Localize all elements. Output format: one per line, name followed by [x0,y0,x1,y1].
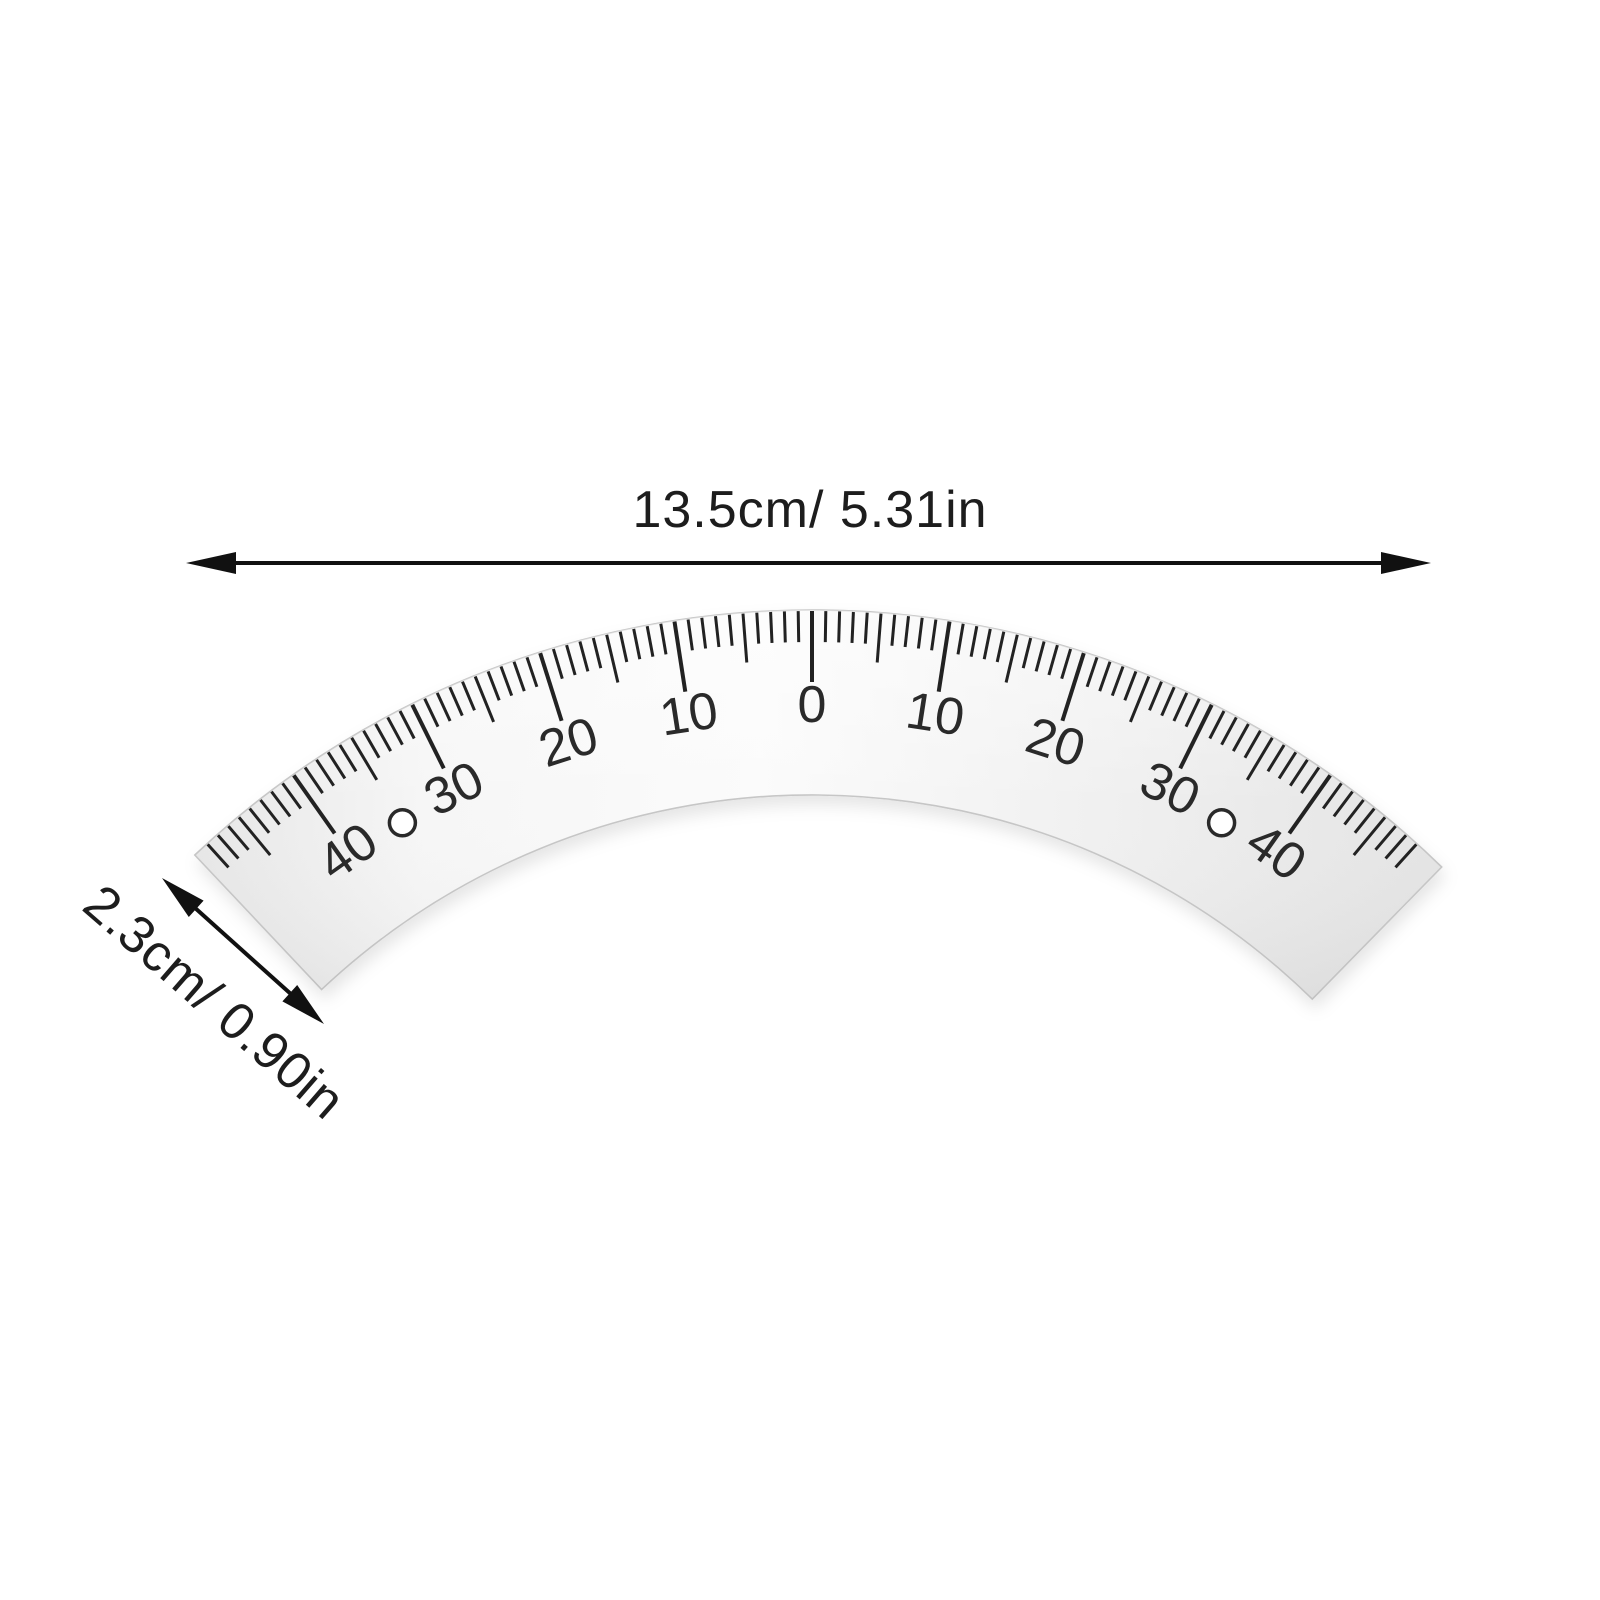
scale-label: 0 [798,676,827,734]
ruler-tick [852,612,853,643]
product-image: 13.5cm/ 5.31in [0,0,1600,1600]
scale-label: 10 [656,681,722,747]
ruler-tick [798,611,799,642]
scale-label: 10 [902,681,968,747]
ruler-tick [825,611,826,642]
arrow-left-icon [186,552,236,574]
ruler-illustration: 2.3cm/ 0.90in 40302010010203040 [0,0,1600,1600]
ruler-tick [757,613,759,644]
ruler-tick [771,612,772,643]
arrow-right-icon [1381,552,1431,574]
ruler-hole [389,810,415,836]
ruler-tick [865,613,867,644]
length-dimension-arrow [186,552,1431,574]
arc-ruler: 40302010010203040 [195,610,1442,999]
ruler-tick [784,611,785,642]
ruler-body-sheen [195,610,1442,999]
ruler-hole [1209,810,1235,836]
ruler-tick [839,611,840,642]
